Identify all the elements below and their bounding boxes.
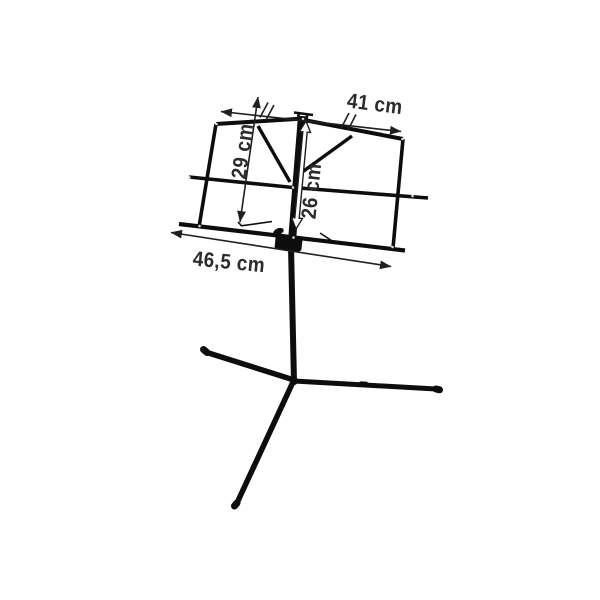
desk-left-outer-edge [199, 124, 216, 227]
tripod-left-leg [207, 353, 294, 381]
dim-label-desk-height: 29 cm [228, 122, 259, 180]
support-pole [291, 247, 294, 382]
dim-label-bottom-width: 46,5 cm [192, 248, 266, 278]
music-stand-dimension-diagram: 41 cm 29 cm 26 cm 46,5 cm [0, 0, 600, 600]
tripod-base [204, 350, 440, 507]
desk-left-lip [238, 222, 272, 226]
dim-leader-tick [260, 103, 268, 118]
dim-label-top-width: 41 cm [346, 90, 404, 120]
tripod-right-foot [436, 389, 440, 390]
dimension-desk-height: 29 cm [228, 97, 274, 222]
desk-right-outer-edge [393, 139, 403, 248]
tripod-front-leg [237, 382, 293, 503]
product-image: 41 cm 29 cm 26 cm 46,5 cm [0, 0, 600, 600]
dim-label-center-height: 26 cm [298, 162, 327, 220]
tripod-leg-bracket [359, 381, 368, 387]
tripod-front-foot [235, 503, 238, 506]
desk-left-brace [258, 126, 290, 182]
tripod-hub [290, 377, 298, 385]
tripod-left-foot [204, 350, 208, 353]
